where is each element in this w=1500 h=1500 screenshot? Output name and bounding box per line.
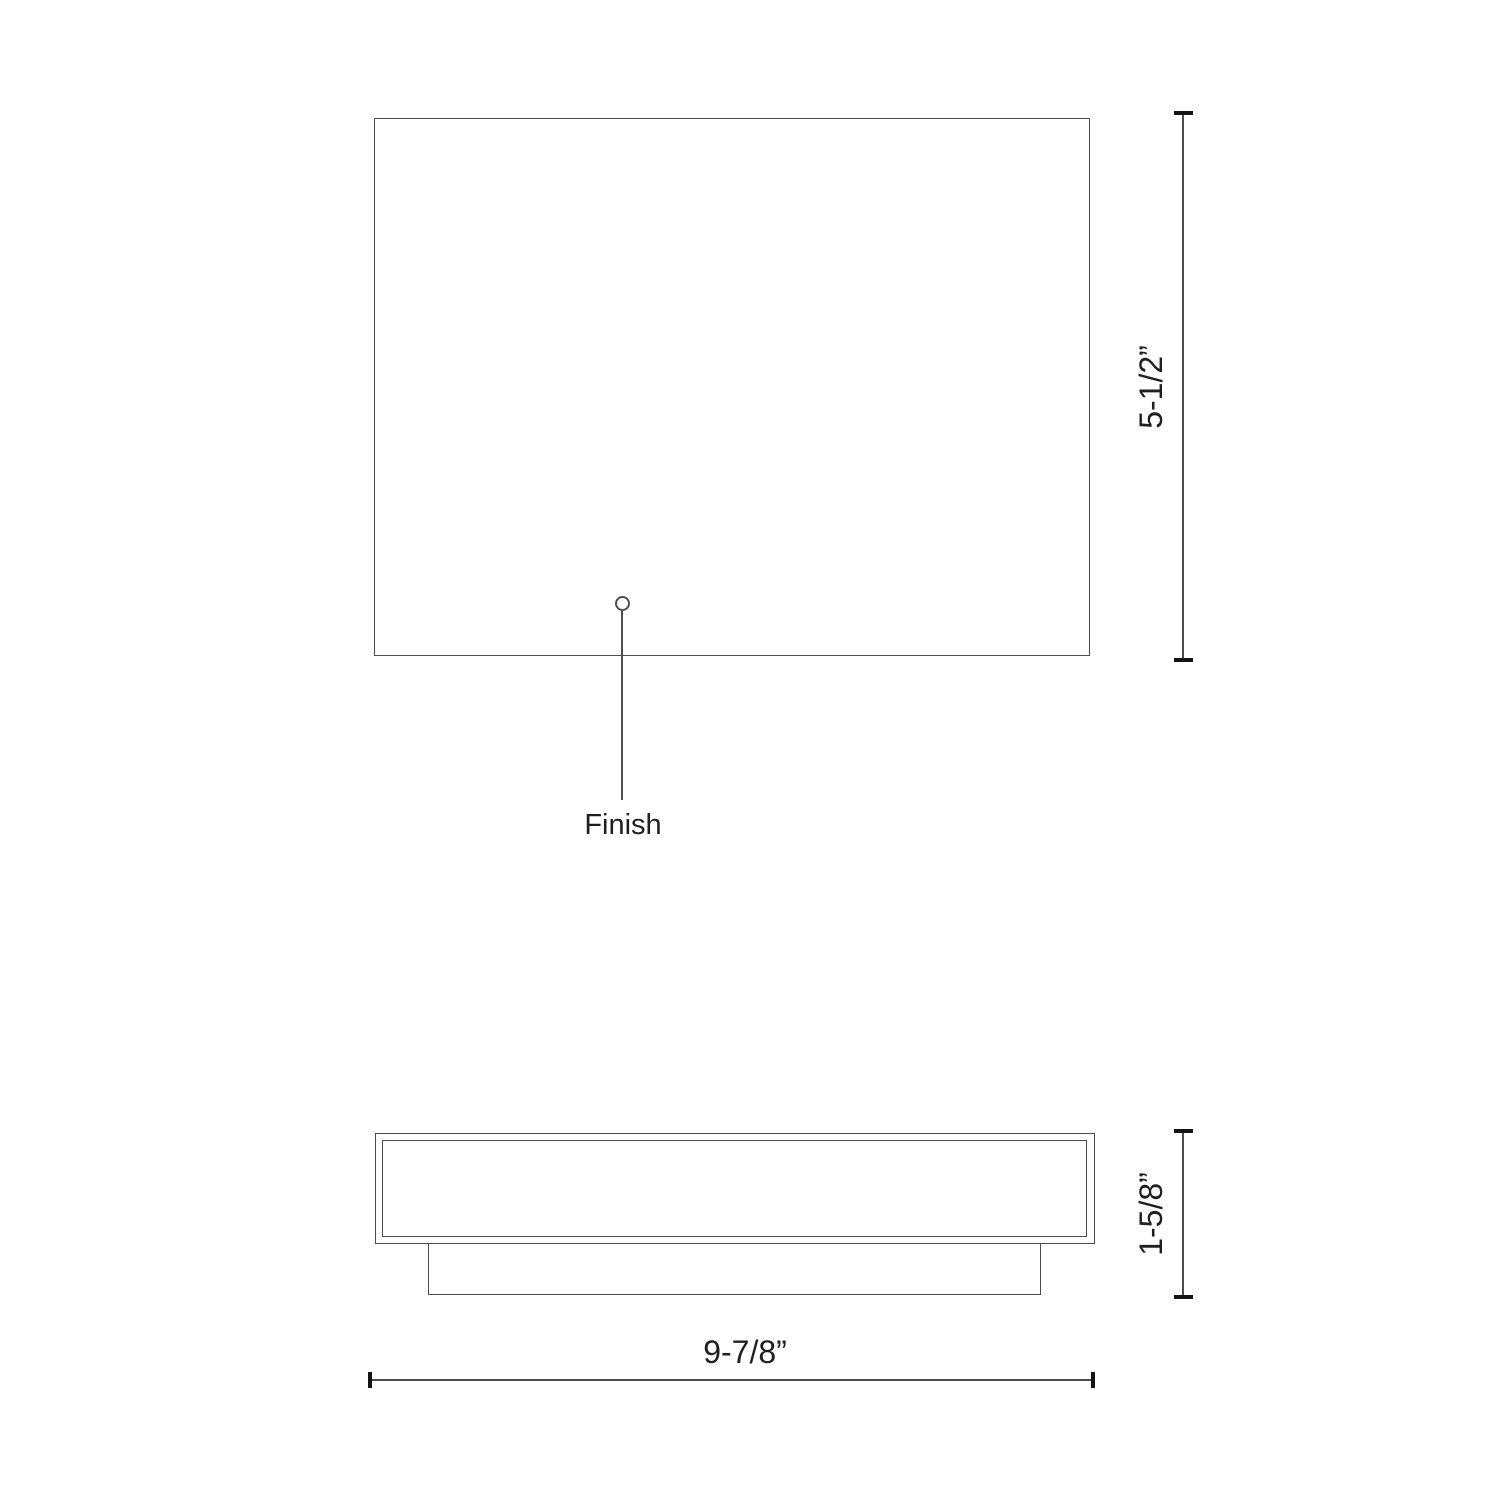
width-dimension-label: 9-7/8” xyxy=(635,1334,855,1370)
side-height-dimension-line xyxy=(1182,1131,1184,1298)
width-dimension-line xyxy=(370,1379,1093,1381)
width-dimension-left-tick xyxy=(368,1372,372,1388)
side-height-dimension-bottom-tick xyxy=(1174,1295,1193,1299)
dimension-drawing-canvas: Finish 5-1/2” 1-5/8” 9-7/8” xyxy=(0,0,1500,1500)
front-height-dimension-top-tick xyxy=(1174,111,1193,115)
finish-leader-line xyxy=(621,611,623,800)
width-dimension-right-tick xyxy=(1091,1372,1095,1388)
finish-label: Finish xyxy=(523,809,723,841)
front-height-dimension-label: 5-1/2” xyxy=(1133,277,1169,497)
front-view-outline xyxy=(374,118,1090,656)
finish-callout-marker-icon xyxy=(615,596,630,611)
side-height-dimension-top-tick xyxy=(1174,1129,1193,1133)
front-height-dimension-line xyxy=(1182,113,1184,661)
side-view-inner-outline xyxy=(382,1140,1087,1237)
side-view-mounting-plate xyxy=(428,1244,1041,1295)
front-height-dimension-bottom-tick xyxy=(1174,658,1193,662)
side-height-dimension-label: 1-5/8” xyxy=(1133,1104,1169,1324)
